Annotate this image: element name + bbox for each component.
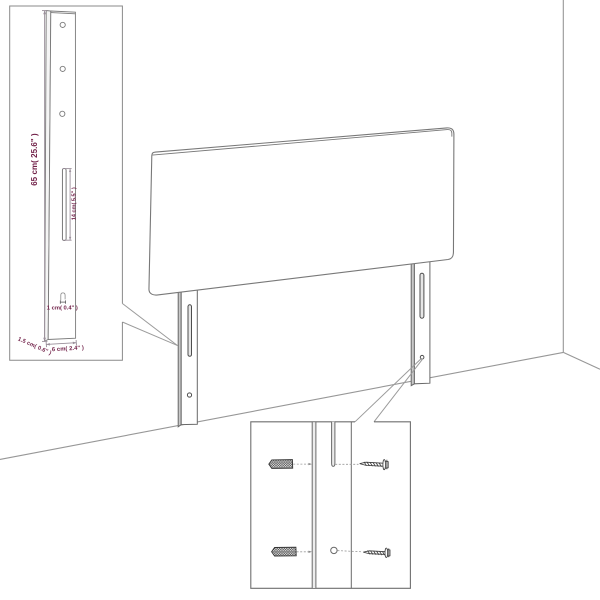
svg-text:65 cm( 25.6" ): 65 cm( 25.6" ): [30, 133, 39, 186]
svg-text:14 cm( 5.5" ): 14 cm( 5.5" ): [71, 187, 77, 220]
svg-text:1 cm( 0.4" ): 1 cm( 0.4" ): [47, 306, 78, 312]
